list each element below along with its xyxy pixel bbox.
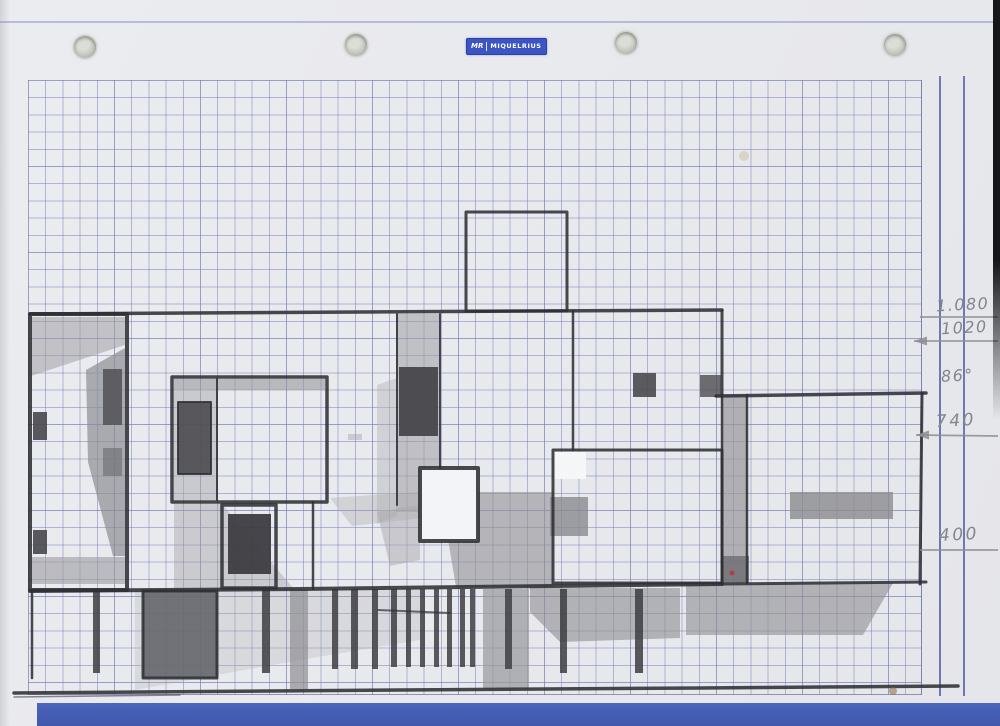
hole-punch-4 [884,34,906,56]
right-block-right-edge [920,393,922,584]
wide-gray-column [290,589,308,689]
left-edge-slit-1 [33,412,47,440]
ground-dark-panel [143,591,217,678]
gray-pier-dark-bar [505,589,512,669]
brand-logo: MR MIQUELRIUS [466,38,547,55]
left-edge-slit-2 [33,530,47,554]
page-left-shadow [0,0,10,726]
yellow-stain [739,151,749,161]
brand-logo-divider [486,42,487,51]
left-block-dark-window [103,369,122,425]
dimension-label-1080: 1.080 [936,294,990,316]
ground-line-double [14,695,180,697]
roof-tower-outline [466,212,567,311]
pencil-smudge [348,434,362,440]
frame-top-shade [174,379,325,390]
pencil-elevation-sketch [0,0,1000,726]
right-block-pier-foot [722,556,749,583]
scanned-notebook-page: MR MIQUELRIUS 1.080 1020 86° 740 400 [0,0,1000,726]
frame-dark-window [178,402,211,474]
dimension-label-1020: 1020 [941,317,989,338]
white-window-shadow [377,505,420,566]
ground-shadow-center [530,588,680,642]
hole-punch-2 [345,34,367,56]
left-block-bottom-shade [32,557,125,584]
right-block-gray-bar [790,492,893,519]
white-framed-window-fill [420,468,478,541]
dimension-label-740: 740 [936,410,977,432]
dimension-label-86deg: 86° [941,365,975,386]
blue-footer-band [37,703,1000,726]
small-dark-square-1 [633,373,656,397]
ground-shadow-right [686,583,893,635]
panel-edge-gray-block [550,497,588,536]
main-roof-line [30,310,722,314]
center-dark-window [399,367,438,436]
small-dark-square-2 [700,375,721,397]
brand-logo-mark: MR [471,43,483,50]
red-pencil-dot [730,571,735,576]
door-dark-panel [228,514,271,574]
dimension-label-400: 400 [939,524,980,546]
hole-punch-1 [74,36,96,58]
right-block-pier-shade [722,395,747,583]
left-block-mid-window [103,448,122,476]
brand-logo-text: MIQUELRIUS [490,43,541,50]
eraser-patch [554,452,586,479]
hole-punch-3 [615,32,637,54]
brown-stain [889,687,897,695]
scanner-edge-strip [993,0,1000,420]
right-block-bottom-edge [722,582,926,584]
